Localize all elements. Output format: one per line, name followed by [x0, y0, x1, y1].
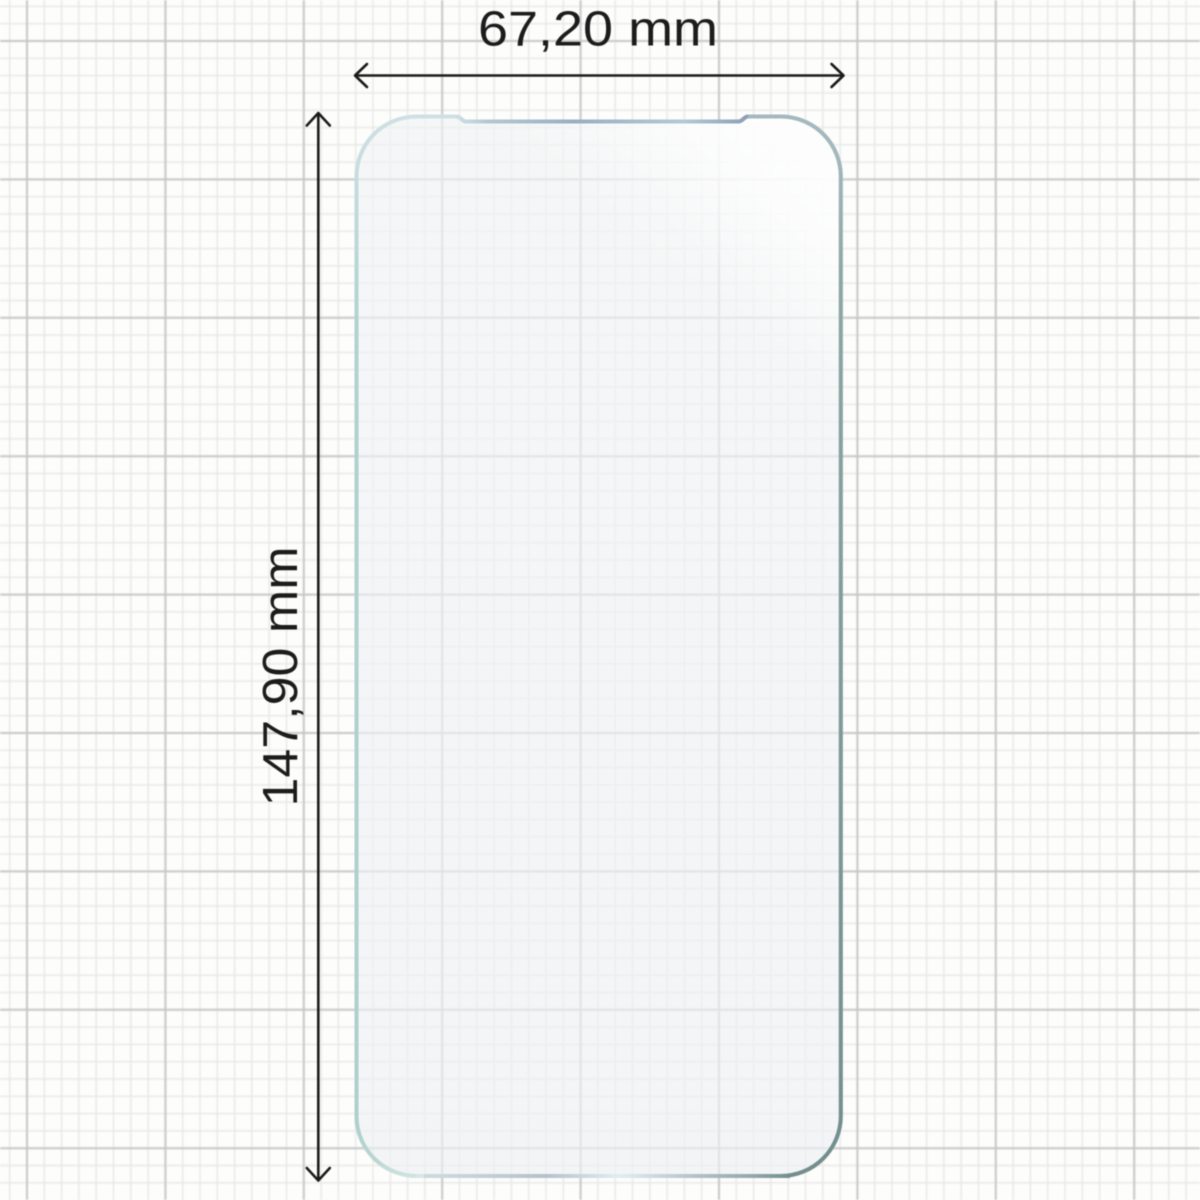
- svg-text:67,20 mm: 67,20 mm: [478, 3, 718, 57]
- svg-text:147,90 mm: 147,90 mm: [254, 547, 308, 807]
